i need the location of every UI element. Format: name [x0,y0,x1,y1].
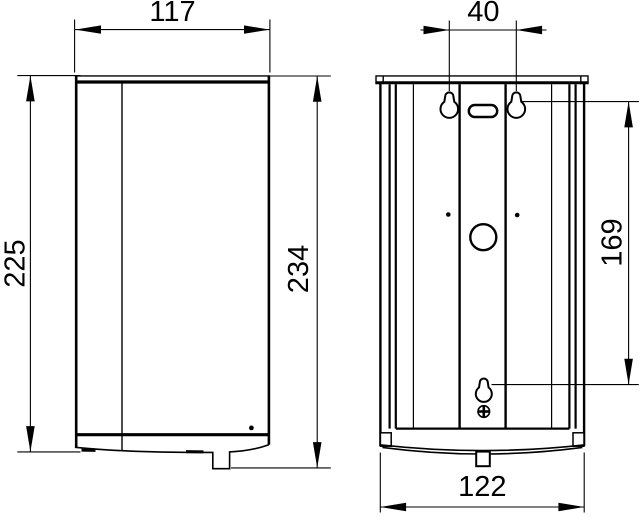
rear-bottom-tab [476,452,490,467]
front-height-right-label: 234 [283,245,315,293]
front-view [75,76,271,469]
front-sensor-dot [249,426,254,431]
pilot-hole-right [515,213,520,218]
arrowhead-40-left [424,26,450,34]
arrowhead-122-right [558,503,584,512]
dimension-front-width: 117 [75,0,270,73]
rear-view [376,75,589,466]
technical-drawing-canvas: 117 225 234 [0,0,640,518]
front-height-left-label: 225 [0,239,31,287]
keyhole-slot-top-left [440,92,458,117]
arrowhead-117-right [244,25,270,33]
hole-spacing-label: 40 [467,0,499,28]
rear-corner-block-left [380,433,391,446]
dimension-front-height-right: 234 [231,76,331,468]
arrowhead-225-bottom [26,426,35,452]
dimension-hole-spacing: 40 [421,0,547,91]
arrowhead-169-bottom [624,359,633,385]
pilot-hole-left [446,212,451,217]
keyhole-slot-top-right [507,92,525,117]
rear-bottom-arc-outer [380,445,584,451]
arrowhead-234-top [313,76,322,102]
arrowhead-117-left [75,25,101,33]
rear-corner-block-right [573,433,584,446]
dimension-hole-vertical: 169 [492,102,639,385]
arrowhead-234-bottom [313,442,322,468]
technical-drawing-page: 117 225 234 [0,0,640,518]
front-width-label: 117 [149,0,195,28]
arrowhead-225-top [26,76,35,102]
arrowhead-40-right [516,26,542,34]
rear-width-label: 122 [458,471,506,503]
arrowhead-169-top [624,102,633,128]
front-bottom-outline [75,445,269,469]
keyhole-slot-bottom [476,379,492,402]
arrowhead-122-left [380,503,406,512]
dimension-front-height-left: 225 [0,76,80,452]
center-hole [470,224,496,250]
vent-slot [469,105,497,117]
hole-vertical-label: 169 [597,218,629,266]
